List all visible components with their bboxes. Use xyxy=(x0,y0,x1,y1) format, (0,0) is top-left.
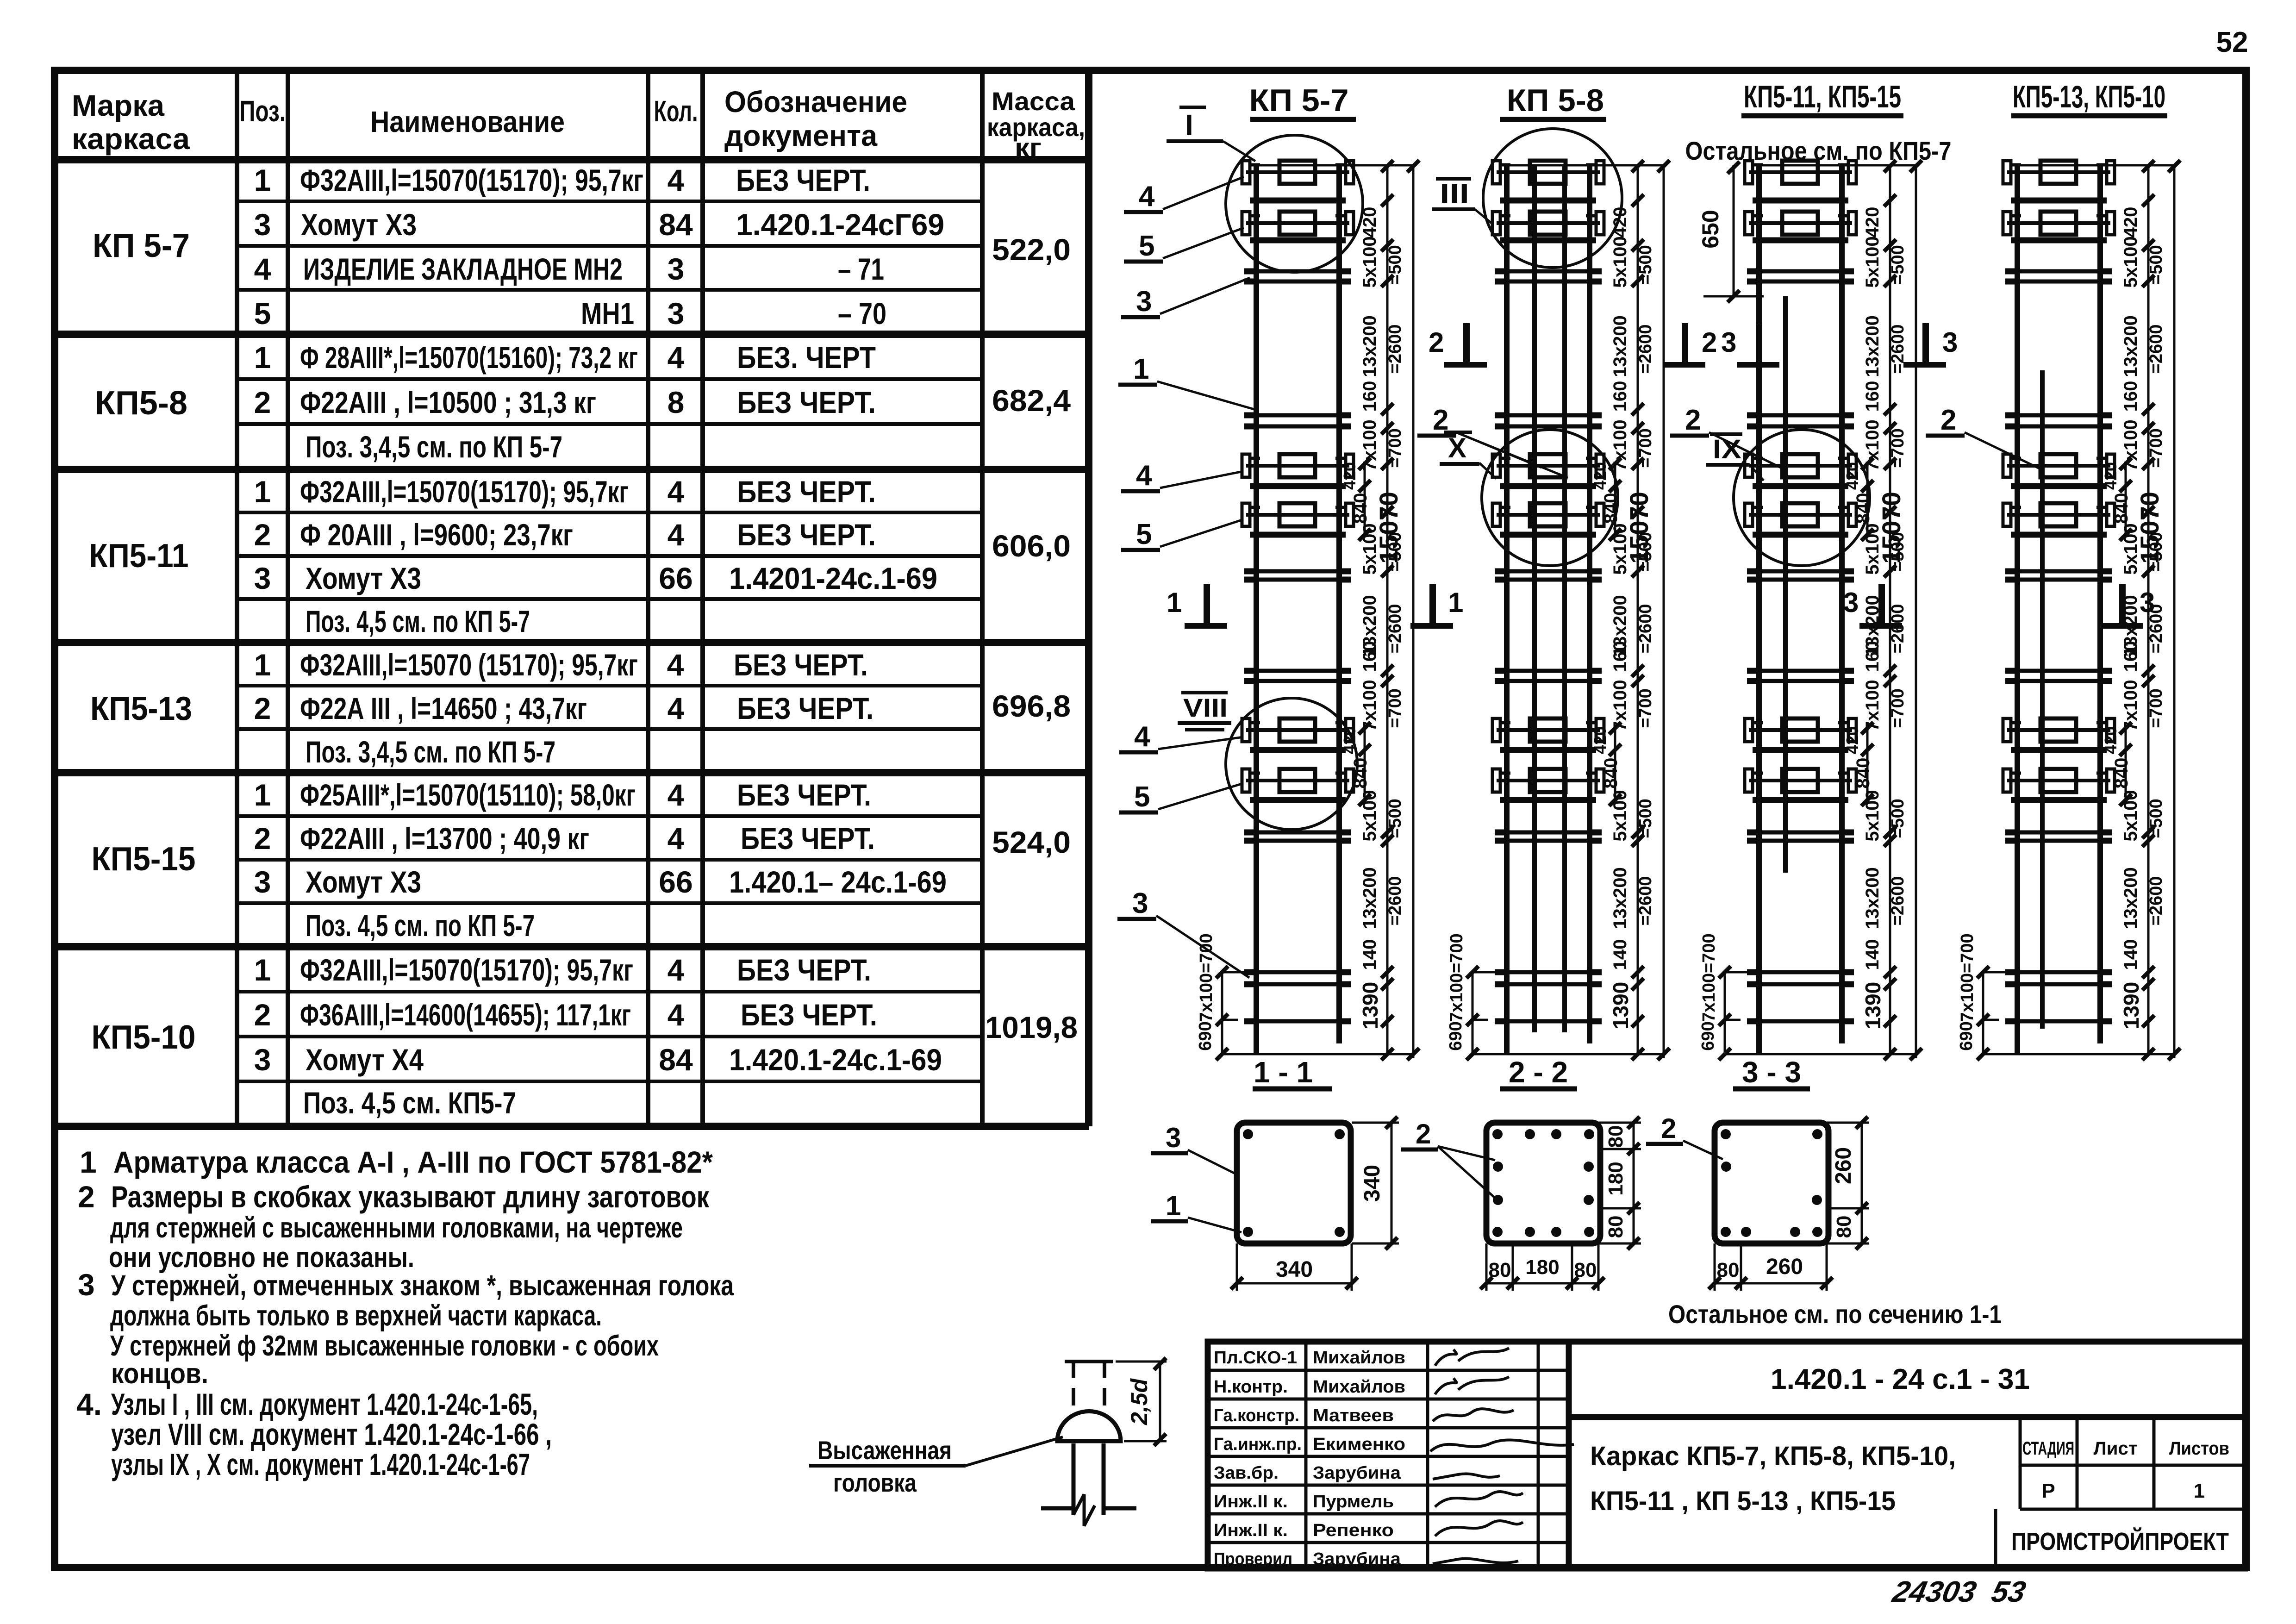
svg-text:Га.инж.пр.: Га.инж.пр. xyxy=(1214,1435,1302,1454)
svg-text:БЕЗ ЧЕРТ.: БЕЗ ЧЕРТ. xyxy=(737,518,876,552)
svg-text:КП5-10: КП5-10 xyxy=(92,1019,196,1056)
svg-text:Поз. 3,4,5 см. по КП 5-7: Поз. 3,4,5 см. по КП 5-7 xyxy=(306,430,562,464)
svg-text:Хомут Х3: Хомут Х3 xyxy=(306,865,421,899)
svg-text:1: 1 xyxy=(254,648,271,682)
svg-text:3: 3 xyxy=(1136,286,1152,318)
svg-text:Проверил: Проверил xyxy=(1214,1549,1292,1569)
svg-text:5: 5 xyxy=(254,296,271,331)
svg-text:696,8: 696,8 xyxy=(992,689,1071,723)
svg-text:2: 2 xyxy=(254,821,271,856)
svg-text:БЕЗ ЧЕРТ.: БЕЗ ЧЕРТ. xyxy=(737,475,876,509)
svg-text:1.420.1– 24с.1-69: 1.420.1– 24с.1-69 xyxy=(729,865,947,899)
svg-text:1019,8: 1019,8 xyxy=(985,1010,1078,1044)
svg-text:3 - 3: 3 - 3 xyxy=(1742,1056,1801,1089)
svg-text:они условно не показаны.: они условно не показаны. xyxy=(109,1242,414,1274)
svg-text:Поз.: Поз. xyxy=(239,94,286,128)
svg-text:2: 2 xyxy=(1416,1118,1431,1149)
svg-text:Репенко: Репенко xyxy=(1313,1521,1394,1540)
svg-text:КП5-15: КП5-15 xyxy=(92,841,196,878)
svg-text:I: I xyxy=(1185,108,1193,142)
svg-text:80: 80 xyxy=(1833,1216,1855,1238)
svg-text:Пурмель: Пурмель xyxy=(1313,1492,1394,1512)
svg-text:66: 66 xyxy=(659,561,693,595)
svg-text:Остальное см. по КП5-7: Остальное см. по КП5-7 xyxy=(1685,136,1952,165)
svg-text:4: 4 xyxy=(254,252,271,286)
svg-text:КП5-13: КП5-13 xyxy=(90,690,192,727)
svg-text:КП5-11 , КП 5-13 , КП5-15: КП5-11 , КП 5-13 , КП5-15 xyxy=(1590,1486,1896,1516)
svg-text:5: 5 xyxy=(1139,230,1154,262)
svg-text:3: 3 xyxy=(254,1043,271,1077)
svg-text:4.: 4. xyxy=(76,1387,102,1421)
svg-text:8: 8 xyxy=(668,385,685,419)
svg-text:1.420.1-24с.1-69: 1.420.1-24с.1-69 xyxy=(729,1043,942,1077)
svg-text:180: 180 xyxy=(1604,1162,1627,1195)
svg-text:80: 80 xyxy=(1717,1259,1740,1281)
svg-text:Х: Х xyxy=(1448,432,1466,463)
svg-text:3: 3 xyxy=(668,252,685,286)
svg-text:1: 1 xyxy=(1166,1190,1181,1221)
svg-text:3: 3 xyxy=(78,1268,95,1302)
svg-text:1: 1 xyxy=(254,778,271,812)
svg-text:– 71: – 71 xyxy=(838,252,884,286)
svg-text:каркаса: каркаса xyxy=(72,122,190,156)
svg-text:52: 52 xyxy=(2216,26,2248,58)
svg-text:IX: IX xyxy=(1713,434,1741,464)
svg-text:1 - 1: 1 - 1 xyxy=(1254,1056,1313,1089)
svg-text:4: 4 xyxy=(1136,460,1152,492)
svg-text:3: 3 xyxy=(1132,887,1148,919)
svg-text:БЕЗ ЧЕРТ.: БЕЗ ЧЕРТ. xyxy=(737,953,871,987)
svg-text:606,0: 606,0 xyxy=(992,529,1071,563)
svg-text:4: 4 xyxy=(668,340,685,375)
svg-text:– 70: – 70 xyxy=(838,296,886,331)
svg-text:КП5-11, КП5-15: КП5-11, КП5-15 xyxy=(1744,79,1901,114)
svg-text:84: 84 xyxy=(659,1043,693,1077)
svg-text:80: 80 xyxy=(1604,1216,1627,1238)
svg-text:4: 4 xyxy=(668,953,685,987)
svg-text:Марка: Марка xyxy=(72,89,164,122)
svg-text:2: 2 xyxy=(254,385,271,419)
svg-text:5: 5 xyxy=(1136,518,1152,550)
svg-text:Хомут Х4: Хомут Х4 xyxy=(306,1043,424,1077)
svg-text:Ф25АIII*,l=15070(15110); 58,0к: Ф25АIII*,l=15070(15110); 58,0кг xyxy=(300,778,636,812)
svg-text:1: 1 xyxy=(254,953,271,987)
svg-text:БЕЗ ЧЕРТ.: БЕЗ ЧЕРТ. xyxy=(741,998,877,1032)
svg-text:У стержней ф 32мм высаженные г: У стержней ф 32мм высаженные головки - с… xyxy=(110,1330,659,1362)
svg-text:Матвеев: Матвеев xyxy=(1313,1406,1394,1425)
svg-text:260: 260 xyxy=(1831,1147,1856,1184)
svg-text:2: 2 xyxy=(254,691,271,725)
svg-text:Обозначение: Обозначение xyxy=(724,85,907,119)
svg-text:4: 4 xyxy=(668,518,685,552)
svg-text:4: 4 xyxy=(668,998,685,1032)
svg-text:Екименко: Екименко xyxy=(1313,1435,1405,1454)
svg-text:2: 2 xyxy=(254,998,271,1032)
svg-text:2: 2 xyxy=(1940,404,1956,436)
svg-text:Наименование: Наименование xyxy=(370,105,565,138)
svg-text:Поз. 4,5 см. по КП 5-7: Поз. 4,5 см. по КП 5-7 xyxy=(306,604,530,638)
svg-text:2: 2 xyxy=(254,518,271,552)
svg-text:головка: головка xyxy=(833,1468,917,1497)
svg-text:80: 80 xyxy=(1489,1259,1511,1281)
svg-text:4: 4 xyxy=(668,821,685,856)
svg-text:Поз. 4,5 см. КП5-7: Поз. 4,5 см. КП5-7 xyxy=(303,1086,516,1120)
svg-text:180: 180 xyxy=(1525,1256,1559,1279)
svg-text:БЕЗ ЧЕРТ.: БЕЗ ЧЕРТ. xyxy=(741,821,875,856)
svg-text:524,0: 524,0 xyxy=(992,825,1071,859)
svg-text:для стержней с высаженными гол: для стержней с высаженными головками, на… xyxy=(110,1212,683,1244)
svg-text:Кол.: Кол. xyxy=(654,94,698,128)
svg-text:24303 53: 24303 53 xyxy=(1889,1575,2029,1608)
svg-text:КП 5-7: КП 5-7 xyxy=(93,227,190,264)
svg-text:КП 5-7: КП 5-7 xyxy=(1249,83,1349,118)
svg-text:Лист: Лист xyxy=(2094,1438,2138,1459)
svg-text:3: 3 xyxy=(2140,587,2155,618)
svg-text:У стержней, отмеченных знаком: У стержней, отмеченных знаком *, высажен… xyxy=(111,1270,734,1302)
svg-text:должна быть только в верхней ч: должна быть только в верхней части карка… xyxy=(110,1300,602,1332)
svg-text:КП 5-8: КП 5-8 xyxy=(1507,83,1604,118)
svg-text:682,4: 682,4 xyxy=(992,383,1071,418)
svg-text:ИЗДЕЛИЕ ЗАКЛАДНОЕ МН2: ИЗДЕЛИЕ ЗАКЛАДНОЕ МН2 xyxy=(303,252,623,286)
svg-text:Ф22АIII , l=13700 ; 40,9 кг: Ф22АIII , l=13700 ; 40,9 кг xyxy=(300,821,589,856)
svg-text:БЕЗ ЧЕРТ.: БЕЗ ЧЕРТ. xyxy=(734,648,868,682)
svg-text:Хомут Х3: Хомут Х3 xyxy=(306,561,421,595)
svg-text:Высаженная: Высаженная xyxy=(817,1436,952,1465)
svg-text:Хомут Х3: Хомут Х3 xyxy=(301,207,417,242)
svg-text:ПРОМСТРОЙПРОЕКТ: ПРОМСТРОЙПРОЕКТ xyxy=(2011,1527,2229,1555)
svg-text:кг: кг xyxy=(1015,133,1042,162)
svg-text:2: 2 xyxy=(78,1180,95,1214)
svg-text:1.4201-24с.1-69: 1.4201-24с.1-69 xyxy=(729,561,937,595)
svg-text:БЕЗ ЧЕРТ.: БЕЗ ЧЕРТ. xyxy=(737,385,876,419)
svg-text:2: 2 xyxy=(1702,327,1717,358)
svg-text:Каркас КП5-7, КП5-8, КП5-10,: Каркас КП5-7, КП5-8, КП5-10, xyxy=(1590,1441,1956,1471)
svg-text:3: 3 xyxy=(254,865,271,899)
svg-text:СТАДИЯ: СТАДИЯ xyxy=(2022,1438,2074,1459)
svg-text:Ф32АIII,l=15070 (15170); 95,7к: Ф32АIII,l=15070 (15170); 95,7кг xyxy=(300,648,638,682)
svg-text:Га.констр.: Га.констр. xyxy=(1214,1406,1299,1425)
svg-text:Р: Р xyxy=(2041,1480,2055,1502)
svg-text:документа: документа xyxy=(724,119,877,152)
svg-text:Михайлов: Михайлов xyxy=(1313,1348,1405,1368)
svg-text:2: 2 xyxy=(1429,327,1444,358)
svg-text:Ф32АIII,l=15070(15170); 95,7кг: Ф32АIII,l=15070(15170); 95,7кг xyxy=(300,163,643,197)
svg-text:1.420.1-24сГ69: 1.420.1-24сГ69 xyxy=(736,207,944,242)
svg-text:Ф 28АIII*,l=15070(15160); 73,2: Ф 28АIII*,l=15070(15160); 73,2 кг xyxy=(300,340,638,375)
svg-text:3: 3 xyxy=(254,561,271,595)
svg-text:БЕЗ ЧЕРТ.: БЕЗ ЧЕРТ. xyxy=(737,691,873,725)
svg-text:4: 4 xyxy=(668,778,685,812)
svg-text:260: 260 xyxy=(1766,1255,1803,1279)
svg-text:4: 4 xyxy=(668,475,685,509)
svg-text:66: 66 xyxy=(659,865,693,899)
svg-text:БЕЗ ЧЕРТ.: БЕЗ ЧЕРТ. xyxy=(736,163,870,197)
svg-text:2: 2 xyxy=(1685,404,1701,436)
svg-text:340: 340 xyxy=(1360,1165,1385,1202)
svg-text:БЕЗ. ЧЕРТ: БЕЗ. ЧЕРТ xyxy=(737,340,876,375)
svg-text:КП5-13, КП5-10: КП5-13, КП5-10 xyxy=(2013,79,2165,114)
svg-text:3: 3 xyxy=(1843,587,1859,618)
svg-text:2,5d: 2,5d xyxy=(1126,1378,1152,1426)
svg-text:80: 80 xyxy=(1604,1125,1627,1148)
svg-text:Ф22АIII , l=10500 ; 31,3 кг: Ф22АIII , l=10500 ; 31,3 кг xyxy=(300,385,596,419)
svg-text:1: 1 xyxy=(80,1145,97,1179)
svg-text:Зарубина: Зарубина xyxy=(1313,1549,1401,1569)
svg-text:узлы IX , X см. документ 1.420: узлы IX , X см. документ 1.420.1-24с-1-6… xyxy=(111,1447,530,1481)
svg-text:1: 1 xyxy=(1448,587,1463,618)
svg-text:КП5-11: КП5-11 xyxy=(89,537,189,575)
svg-text:Остальное см. по сечению 1-1: Остальное см. по сечению 1-1 xyxy=(1668,1299,2002,1329)
svg-text:3: 3 xyxy=(254,207,271,242)
svg-text:4: 4 xyxy=(668,691,685,725)
svg-text:340: 340 xyxy=(1276,1257,1313,1282)
svg-text:3: 3 xyxy=(1166,1122,1181,1153)
svg-text:МН1: МН1 xyxy=(581,296,634,331)
svg-text:1: 1 xyxy=(1133,353,1149,385)
svg-text:КП5-8: КП5-8 xyxy=(95,385,187,422)
svg-text:522,0: 522,0 xyxy=(992,232,1071,267)
svg-text:Зарубина: Зарубина xyxy=(1313,1463,1401,1483)
svg-text:Зав.бр.: Зав.бр. xyxy=(1214,1463,1279,1483)
svg-text:III: III xyxy=(1440,179,1469,209)
svg-text:Пл.СКО-1: Пл.СКО-1 xyxy=(1214,1348,1297,1368)
svg-text:Масса: Масса xyxy=(992,87,1075,116)
svg-text:1.420.1 - 24 с.1 - 31: 1.420.1 - 24 с.1 - 31 xyxy=(1771,1363,2030,1395)
svg-text:650: 650 xyxy=(1697,210,1723,248)
svg-text:4: 4 xyxy=(667,648,684,682)
svg-text:2 - 2: 2 - 2 xyxy=(1509,1056,1568,1089)
svg-text:1: 1 xyxy=(2194,1480,2205,1502)
svg-text:Ф 20АIII , l=9600; 23,7кг: Ф 20АIII , l=9600; 23,7кг xyxy=(300,518,573,552)
svg-text:4: 4 xyxy=(1134,721,1150,753)
svg-text:4: 4 xyxy=(1139,181,1155,212)
svg-text:концов.: концов. xyxy=(111,1358,208,1390)
svg-text:Н.контр.: Н.контр. xyxy=(1214,1377,1288,1397)
svg-text:Ф22А III , l=14650 ; 43,7кг: Ф22А III , l=14650 ; 43,7кг xyxy=(300,691,587,725)
svg-text:80: 80 xyxy=(1574,1259,1597,1281)
svg-text:Узлы I , III см. документ 1.42: Узлы I , III см. документ 1.420.1-24с-1-… xyxy=(111,1387,538,1421)
svg-text:Поз. 4,5 см. по КП 5-7: Поз. 4,5 см. по КП 5-7 xyxy=(306,908,535,943)
svg-text:Листов: Листов xyxy=(2169,1438,2229,1459)
svg-text:1: 1 xyxy=(254,340,271,375)
svg-text:3: 3 xyxy=(668,296,685,331)
svg-text:Инж.II к.: Инж.II к. xyxy=(1214,1521,1288,1540)
svg-text:1: 1 xyxy=(1167,587,1182,618)
svg-text:Поз. 3,4,5 см. по КП 5-7: Поз. 3,4,5 см. по КП 5-7 xyxy=(306,735,555,769)
svg-text:узел VIII см. документ 1.420.1: узел VIII см. документ 1.420.1-24с-1-66 … xyxy=(111,1417,552,1451)
svg-text:5: 5 xyxy=(1134,781,1150,813)
svg-text:Инж.II к.: Инж.II к. xyxy=(1214,1492,1288,1512)
svg-text:Ф36АIII,l=14600(14655); 117,1к: Ф36АIII,l=14600(14655); 117,1кг xyxy=(300,998,631,1032)
svg-text:3: 3 xyxy=(1721,327,1736,358)
svg-text:2: 2 xyxy=(1661,1113,1676,1144)
svg-text:Михайлов: Михайлов xyxy=(1313,1377,1405,1397)
svg-text:Арматура класса А-I , А-III по: Арматура класса А-I , А-III по ГОСТ 5781… xyxy=(113,1145,713,1179)
svg-text:4: 4 xyxy=(668,163,685,197)
svg-text:БЕЗ ЧЕРТ.: БЕЗ ЧЕРТ. xyxy=(737,778,871,812)
svg-text:3: 3 xyxy=(1942,327,1958,358)
svg-text:1: 1 xyxy=(254,163,271,197)
svg-text:VIII: VIII xyxy=(1183,693,1228,722)
svg-text:84: 84 xyxy=(659,207,693,242)
svg-text:1: 1 xyxy=(254,475,271,509)
svg-text:Ф32АIII,l=15070(15170); 95,7кг: Ф32АIII,l=15070(15170); 95,7кг xyxy=(300,953,633,987)
svg-text:Размеры в скобках указывают дл: Размеры в скобках указывают длину загото… xyxy=(111,1180,710,1214)
svg-text:Ф32АIII,l=15070(15170); 95,7кг: Ф32АIII,l=15070(15170); 95,7кг xyxy=(300,475,629,509)
